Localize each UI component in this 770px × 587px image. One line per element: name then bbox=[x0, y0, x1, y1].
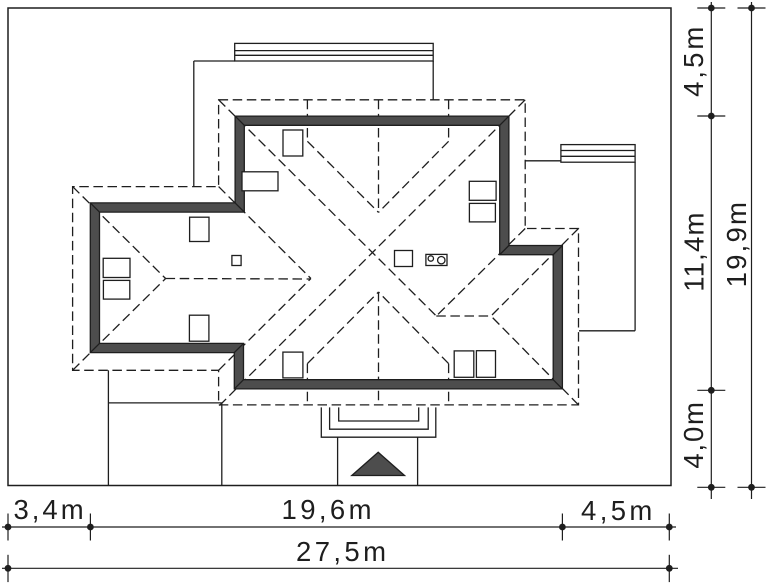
svg-text:4,5m: 4,5m bbox=[678, 24, 709, 97]
svg-text:19,6m: 19,6m bbox=[282, 494, 375, 525]
svg-text:11,4m: 11,4m bbox=[679, 211, 710, 291]
svg-text:27,5m: 27,5m bbox=[296, 536, 389, 567]
svg-text:4,5m: 4,5m bbox=[581, 495, 656, 526]
svg-text:19,9m: 19,9m bbox=[721, 200, 752, 287]
svg-text:3,4m: 3,4m bbox=[14, 494, 87, 525]
svg-text:4,0m: 4,0m bbox=[678, 400, 709, 468]
